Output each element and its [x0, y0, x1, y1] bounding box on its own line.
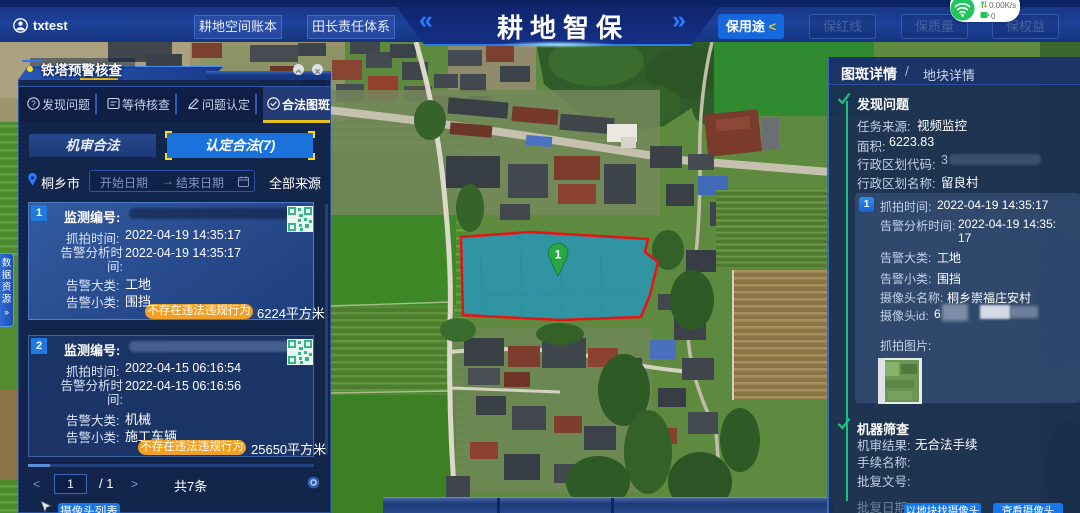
svg-text:1: 1 — [555, 248, 562, 262]
svg-text:?: ? — [31, 98, 36, 108]
